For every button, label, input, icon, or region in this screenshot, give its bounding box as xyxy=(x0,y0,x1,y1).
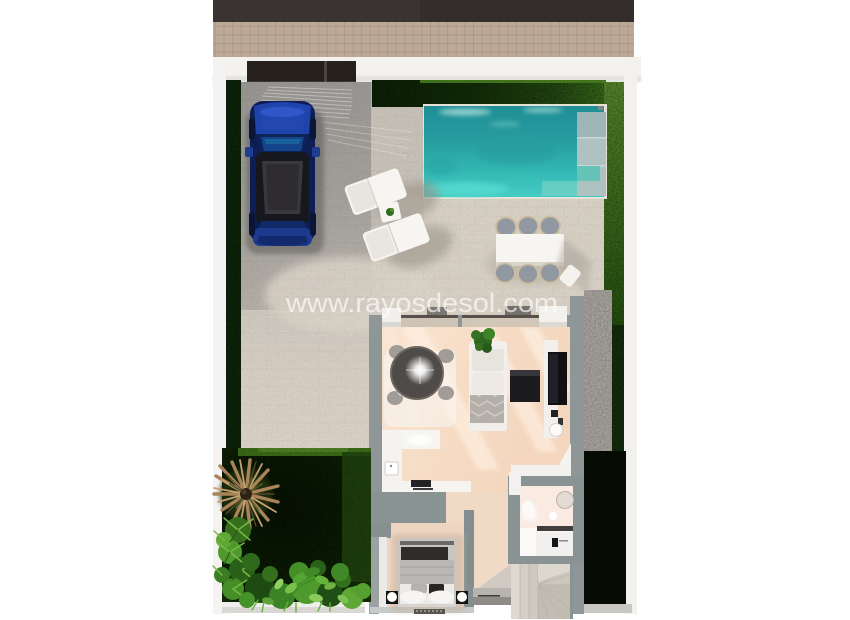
svg-text:www.rayosdesol.com: www.rayosdesol.com xyxy=(285,288,558,318)
